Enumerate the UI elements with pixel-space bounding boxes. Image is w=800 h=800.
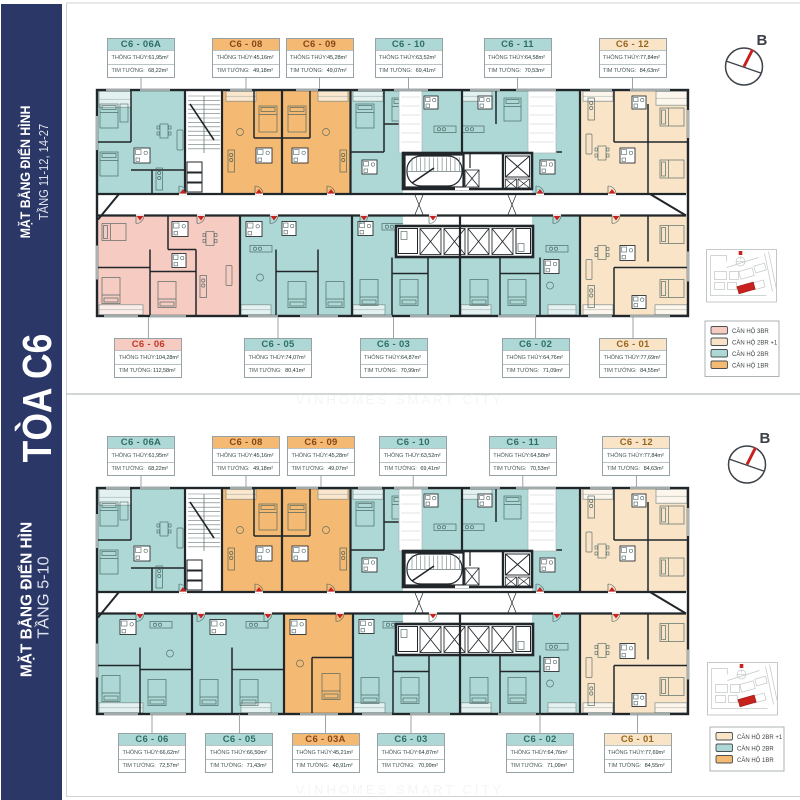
svg-text:CĂN HỘ 1BR: CĂN HỘ 1BR	[732, 362, 769, 369]
svg-text:CĂN HỘ 2BR: CĂN HỘ 2BR	[732, 351, 769, 358]
svg-text:VINHOMES SMART CITY: VINHOMES SMART CITY	[296, 392, 504, 407]
svg-text:CĂN HỘ 1BR: CĂN HỘ 1BR	[737, 757, 774, 764]
svg-text:VINHOMES SMART CITY: VINHOMES SMART CITY	[296, 782, 504, 797]
svg-text:B: B	[757, 32, 768, 49]
svg-text:CĂN HỘ 2BR +1: CĂN HỘ 2BR +1	[732, 339, 778, 346]
svg-text:CĂN HỘ 3BR: CĂN HỘ 3BR	[732, 328, 769, 335]
svg-text:CĂN HỘ 2BR: CĂN HỘ 2BR	[737, 745, 774, 752]
svg-text:B: B	[760, 430, 771, 447]
svg-text:CĂN HỘ 2BR +1: CĂN HỘ 2BR +1	[737, 734, 783, 741]
